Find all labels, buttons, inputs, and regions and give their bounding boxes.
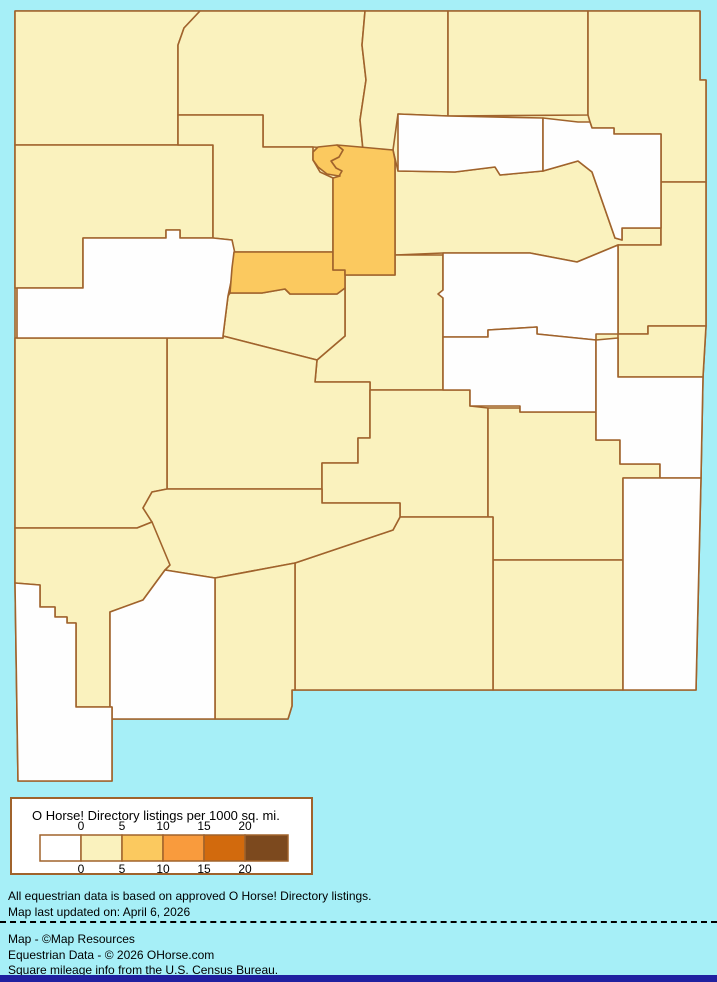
legend-tick: 20: [225, 862, 265, 876]
footer-bar: [0, 975, 717, 982]
map-credit: Map - ©Map Resources: [8, 932, 135, 946]
legend-tick: 0: [61, 862, 101, 876]
legend-swatch-5-10: [122, 835, 163, 861]
nm-county-choropleth-map: [0, 0, 717, 790]
data-source-note: All equestrian data is based on approved…: [8, 889, 372, 903]
legend: O Horse! Directory listings per 1000 sq.…: [10, 797, 313, 875]
legend-tick: 5: [102, 862, 142, 876]
legend-tick: 20: [225, 819, 265, 833]
dashed-separator: [0, 921, 717, 923]
data-credit: Equestrian Data - © 2026 OHorse.com: [8, 948, 214, 962]
county-colfax: [448, 11, 588, 116]
legend-swatch-15-20: [204, 835, 245, 861]
county-eddy: [493, 560, 623, 690]
legend-color-ramp: [39, 834, 289, 863]
county-guadalupe: [438, 245, 618, 340]
last-updated-note: Map last updated on: April 6, 2026: [8, 905, 190, 919]
legend-tick: 10: [143, 862, 183, 876]
county-catron: [15, 338, 167, 528]
county-bernalillo: [230, 252, 345, 294]
county-san-juan: [15, 11, 200, 145]
legend-swatch-0: [40, 835, 81, 861]
county-curry: [618, 326, 706, 377]
legend-tick: 0: [61, 819, 101, 833]
legend-swatch-0-5: [81, 835, 122, 861]
legend-tick: 15: [184, 862, 224, 876]
legend-swatch-10-15: [163, 835, 204, 861]
legend-tick: 10: [143, 819, 183, 833]
legend-tick: 15: [184, 819, 224, 833]
county-dona-ana: [215, 563, 295, 719]
county-santa-fe: [331, 145, 395, 275]
county-mora: [398, 114, 543, 175]
page: O Horse! Directory listings per 1000 sq.…: [0, 0, 717, 982]
county-lea: [623, 478, 701, 690]
legend-tick: 5: [102, 819, 142, 833]
legend-swatch-20-plus: [245, 835, 288, 861]
